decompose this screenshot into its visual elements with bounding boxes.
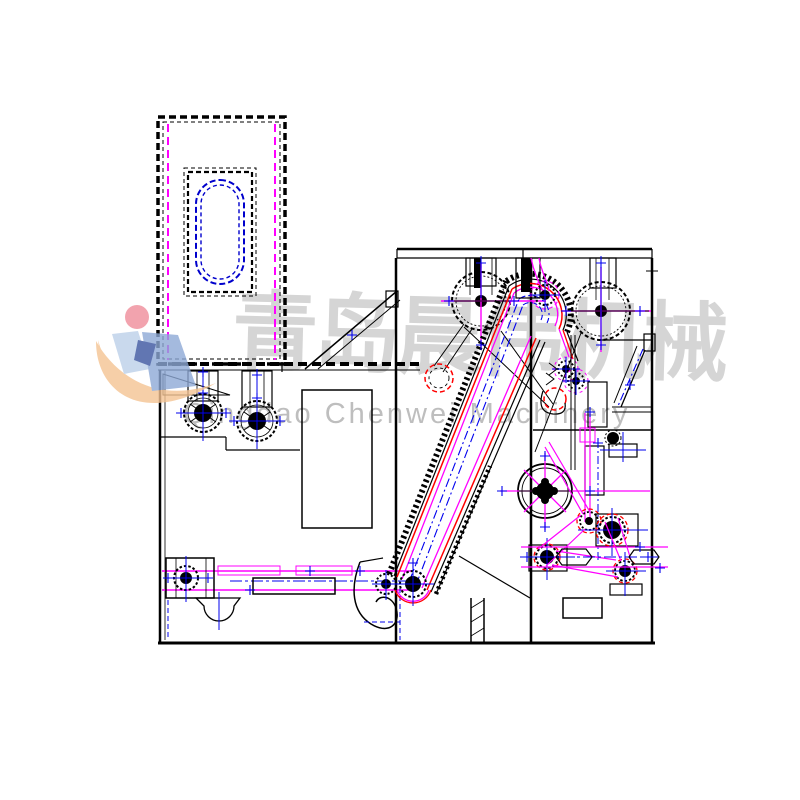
- discharge-chute: [588, 346, 651, 427]
- machine-drawing: [0, 0, 800, 800]
- inclined-spiked-lattice-conveyor: [389, 258, 578, 643]
- hopper-inspection-window: [184, 168, 256, 296]
- drawing-canvas: 青岛晨伟机械 Qingdao Chenwei Machinery: [0, 0, 800, 800]
- feed-hopper-chute: [158, 117, 285, 364]
- toothed-cylinder-right: [535, 256, 652, 452]
- stripper-roller-pair: [541, 357, 590, 414]
- bottom-lattice-conveyor: [162, 556, 418, 640]
